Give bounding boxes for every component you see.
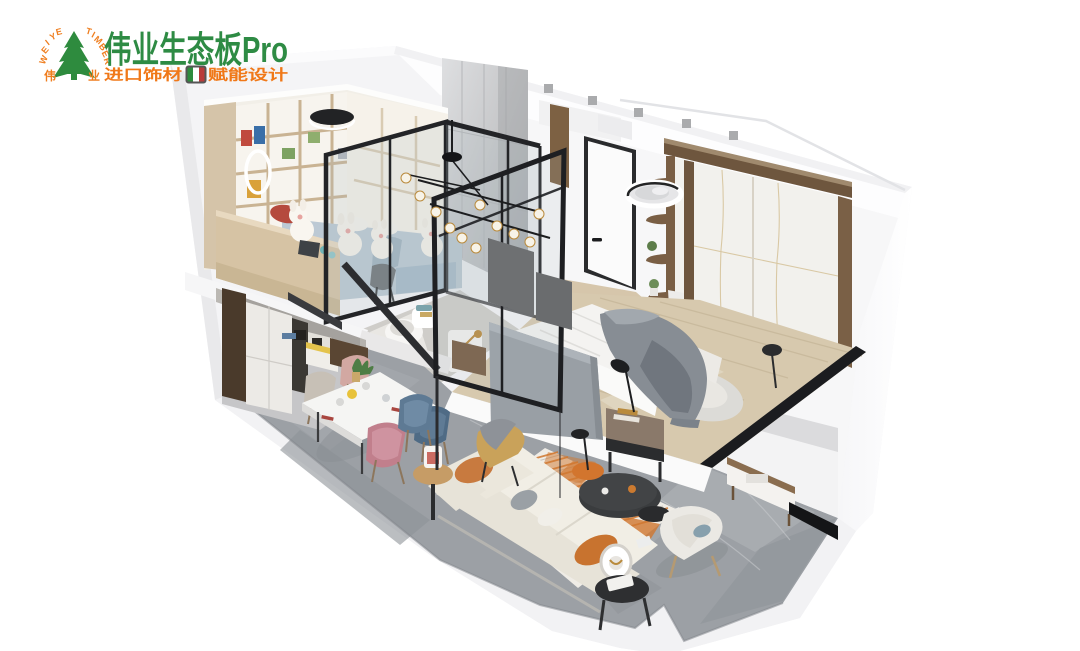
svg-text:伟: 伟 xyxy=(44,68,56,83)
svg-text:业: 业 xyxy=(88,68,100,83)
svg-text:伟业生态板Pro: 伟业生态板Pro xyxy=(104,29,288,70)
svg-text:赋能设计: 赋能设计 xyxy=(208,66,289,84)
svg-text:进口饰材: 进口饰材 xyxy=(104,66,183,84)
